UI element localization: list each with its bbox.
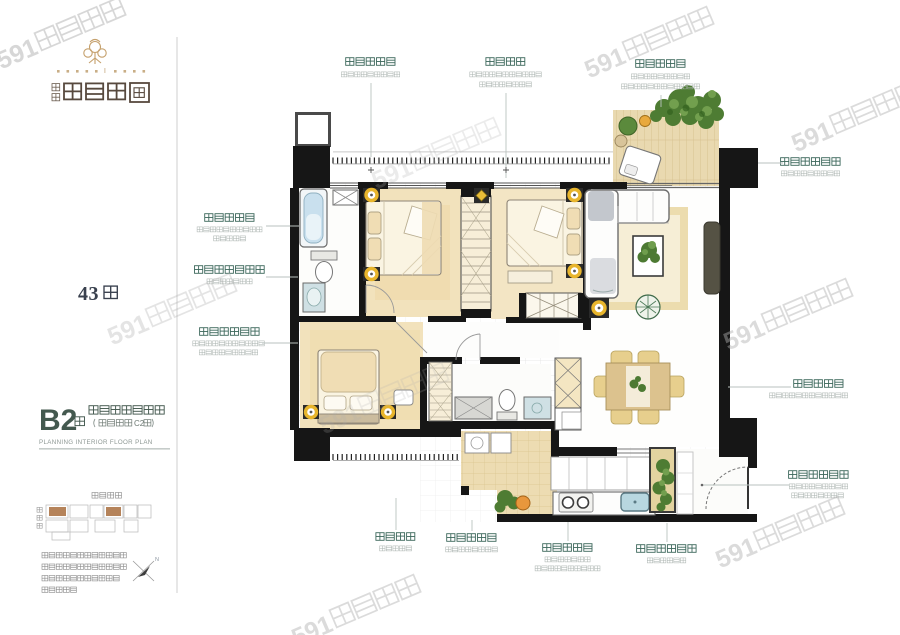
svg-text:PLANNING INTERIOR FLOOR PLAN: PLANNING INTERIOR FLOOR PLAN	[39, 439, 153, 446]
svg-text:43: 43	[78, 283, 99, 305]
svg-text:N: N	[155, 557, 159, 563]
svg-text:C2: C2	[134, 419, 145, 428]
svg-text:B2: B2	[39, 404, 77, 437]
